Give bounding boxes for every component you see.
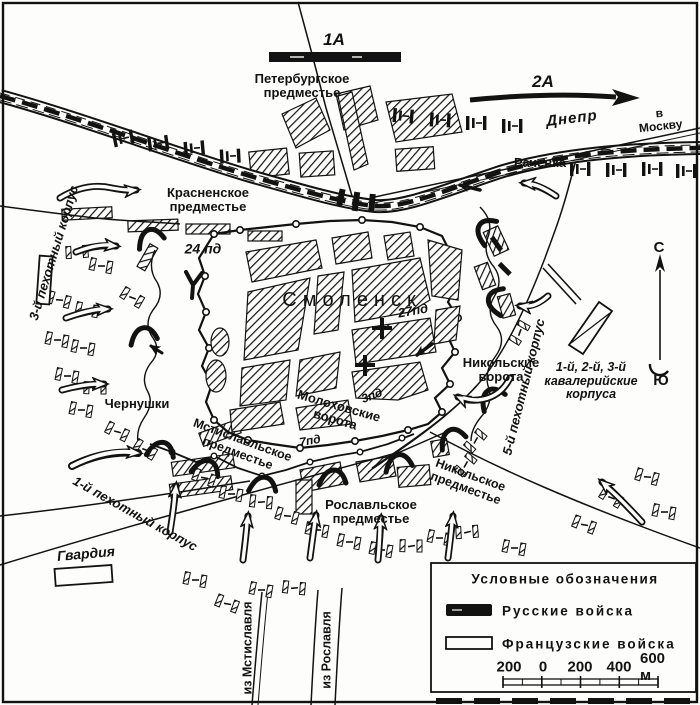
army1-bar: [269, 52, 401, 62]
compass-arrow: [650, 254, 668, 375]
label-compass-north: С: [654, 240, 665, 256]
label-army-2a: 2А: [532, 73, 554, 91]
bridges: [336, 189, 376, 212]
scale-label-0: 200: [496, 659, 521, 676]
label-rachevka: Рачевка: [514, 156, 566, 170]
label-div-24: 24 пд: [185, 241, 222, 256]
legend-label-russian: Русские войска: [502, 604, 634, 619]
label-krasnenskoye-suburb: Красненское предместье: [167, 186, 249, 214]
label-to-moscow: в Москву: [637, 105, 683, 135]
label-roslavl-suburb: Рославльское предместье: [325, 498, 417, 526]
label-road-from-mstislavl: из Мстиславля: [241, 602, 255, 695]
smolensk-battle-map: 1А Петербургское предместье 2А Днепр в М…: [0, 0, 700, 705]
army2-arrow: [470, 89, 640, 106]
label-compass-south: Ю: [653, 373, 668, 389]
scale-label-2: 200: [567, 659, 592, 676]
label-road-from-roslavl: из Рославля: [320, 611, 334, 688]
label-cavalry-corps: 1-й, 2-й, 3-й кавалерийские корпуса: [544, 361, 637, 402]
scale-label-3: 400: [606, 659, 631, 676]
scale-label-4: 600 м: [640, 650, 680, 684]
scale-label-1: 0: [539, 659, 547, 676]
label-chernushki: Чернушки: [105, 397, 170, 411]
map-graphics: [0, 0, 700, 705]
legend-french-symbol: [446, 637, 492, 649]
label-petersburg-suburb: Петербургское предместье: [255, 72, 350, 100]
legend-title: Условные обозначения: [471, 573, 658, 588]
label-army-1a: 1А: [323, 31, 345, 49]
